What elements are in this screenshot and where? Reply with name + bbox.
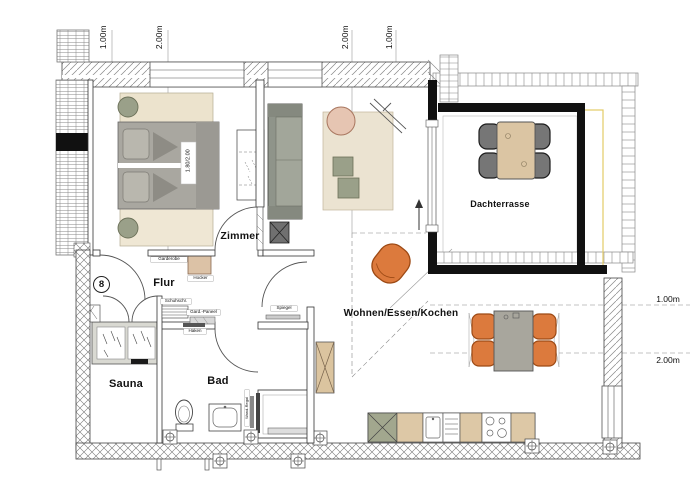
bottom-wall <box>76 443 640 459</box>
sauna-door-arc-left <box>103 296 129 322</box>
sauna-door-arc-right <box>132 296 158 322</box>
lounge-chair <box>366 238 415 288</box>
shower <box>256 390 312 438</box>
dim-right-1: 1.00m <box>647 295 689 304</box>
shaft-box <box>270 222 289 243</box>
room-label-sauna: Sauna <box>100 379 152 390</box>
terrace-door <box>426 120 438 232</box>
parapet-right <box>577 103 585 274</box>
dining-chair <box>532 314 556 339</box>
shoe-cabinet <box>162 306 188 318</box>
room-label-flur: Flur <box>144 278 184 289</box>
dim-top-2: 2.00m <box>155 20 164 54</box>
mirror-bar <box>266 315 300 319</box>
terrace-exit-arrow <box>415 199 423 230</box>
room-label-zimmer: Zimmer <box>210 231 270 242</box>
label-haken: Haken <box>184 329 206 334</box>
sauna-cabin <box>92 322 160 364</box>
label-bed-size: 1.80/2.00 <box>186 141 192 181</box>
sofa <box>268 104 302 219</box>
sauna-bad-wall <box>157 296 162 443</box>
parapet-bottom <box>428 265 607 274</box>
window-living <box>268 62 322 87</box>
parapet-top <box>438 103 585 112</box>
dining-table <box>494 311 533 371</box>
nightstand-bottom <box>118 218 138 238</box>
garderobe-panel <box>190 317 215 324</box>
label-garderobe: Garderobe <box>151 257 187 262</box>
dim-right-2: 2.00m <box>647 356 689 365</box>
left-wall <box>76 250 90 450</box>
balcony-corner <box>57 30 89 62</box>
dining-chair <box>532 341 556 366</box>
top-wall <box>62 62 430 87</box>
dining-set <box>469 311 559 371</box>
parapet-stub-bottom <box>428 231 437 274</box>
dim-top-1: 1.00m <box>99 20 108 54</box>
washbasin <box>209 404 241 431</box>
label-schuhschrank: Schuhschr. <box>161 299 191 304</box>
label-hocker: Hocker <box>188 276 213 281</box>
unit-number: 8 <box>99 279 104 290</box>
room-label-wohnen: Wohnen/Essen/Kochen <box>340 309 462 319</box>
label-gard-paneel: Gard.-Paneel <box>187 310 220 315</box>
balcony-black-wall <box>56 133 89 151</box>
room-label-bad: Bad <box>200 376 236 387</box>
dim-top-4: 1.00m <box>385 20 394 54</box>
terrace-railing-right <box>622 86 635 272</box>
coffee-table-2 <box>338 178 359 198</box>
label-wand-regal: Wand-Regal <box>245 390 249 426</box>
floor-plan: Zimmer Flur Sauna Bad Wohnen/Essen/Koche… <box>0 0 700 500</box>
room-label-dachterrasse: Dachterrasse <box>466 200 534 209</box>
label-spiegel: Spiegel <box>271 306 297 311</box>
hocker-stool <box>188 255 211 274</box>
nightstand-top <box>118 97 138 117</box>
bad-door-arc <box>215 329 258 372</box>
window-right <box>602 386 622 438</box>
living-door-arc <box>262 262 307 307</box>
window-bedroom <box>150 62 244 87</box>
toilet <box>176 400 194 431</box>
dim-top-3: 2.00m <box>341 20 350 54</box>
unit-number-badge: 8 <box>93 276 110 293</box>
sauna-heater <box>131 359 148 364</box>
coffee-table-1 <box>333 157 353 176</box>
floor-plan-drawing <box>0 0 700 500</box>
hooks-bar <box>183 323 205 327</box>
balcony-strip <box>56 80 89 255</box>
terrace-dining-set <box>443 116 577 260</box>
cooktop <box>482 413 511 442</box>
wall-shelf <box>250 396 254 428</box>
terrace-railing-top <box>433 73 638 86</box>
kitchen-counter <box>368 413 535 442</box>
zimmer-door-arc <box>215 207 258 250</box>
dishwasher <box>443 413 460 442</box>
terrace-table <box>497 122 535 179</box>
zimmer-door-leaf <box>257 207 263 250</box>
bedroom-living-wall <box>256 80 264 207</box>
dining-chair <box>472 341 496 366</box>
tall-cabinet <box>316 342 334 393</box>
round-chair <box>327 107 355 135</box>
parapet-stub-top <box>428 80 437 122</box>
dining-chair <box>472 314 496 339</box>
bedroom-west-wall <box>88 80 93 255</box>
